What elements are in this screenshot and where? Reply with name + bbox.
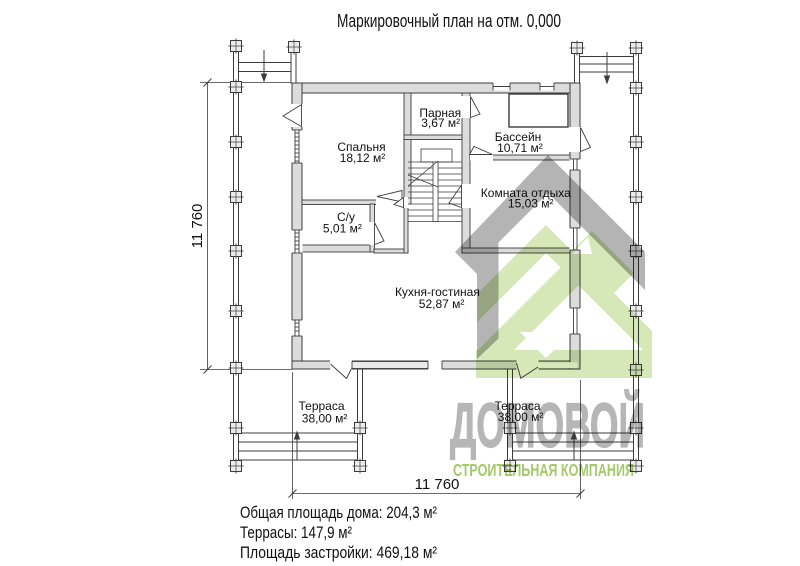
svg-text:11 760: 11 760 xyxy=(189,204,206,249)
svg-text:СТРОИТЕЛЬНАЯ КОМПАНИЯ: СТРОИТЕЛЬНАЯ КОМПАНИЯ xyxy=(453,460,634,480)
svg-text:Общая площадь дома: 204,3 м²: Общая площадь дома: 204,3 м² xyxy=(240,504,437,522)
svg-text:52,87 м²: 52,87 м² xyxy=(419,297,465,311)
svg-text:Террасы: 147,9 м²: Террасы: 147,9 м² xyxy=(240,524,352,542)
svg-text:18,12 м²: 18,12 м² xyxy=(340,151,386,165)
svg-text:38,00 м²: 38,00 м² xyxy=(302,412,348,426)
svg-text:Маркировочный план на отм. 0,0: Маркировочный план на отм. 0,000 xyxy=(337,11,561,31)
svg-text:Площадь застройки: 469,18 м²: Площадь застройки: 469,18 м² xyxy=(240,544,437,562)
svg-text:10,71 м²: 10,71 м² xyxy=(497,141,543,155)
svg-text:ДОМОВОЙ: ДОМОВОЙ xyxy=(450,390,645,461)
svg-text:3,67 м²: 3,67 м² xyxy=(421,116,460,130)
svg-text:5,01 м²: 5,01 м² xyxy=(323,222,362,236)
